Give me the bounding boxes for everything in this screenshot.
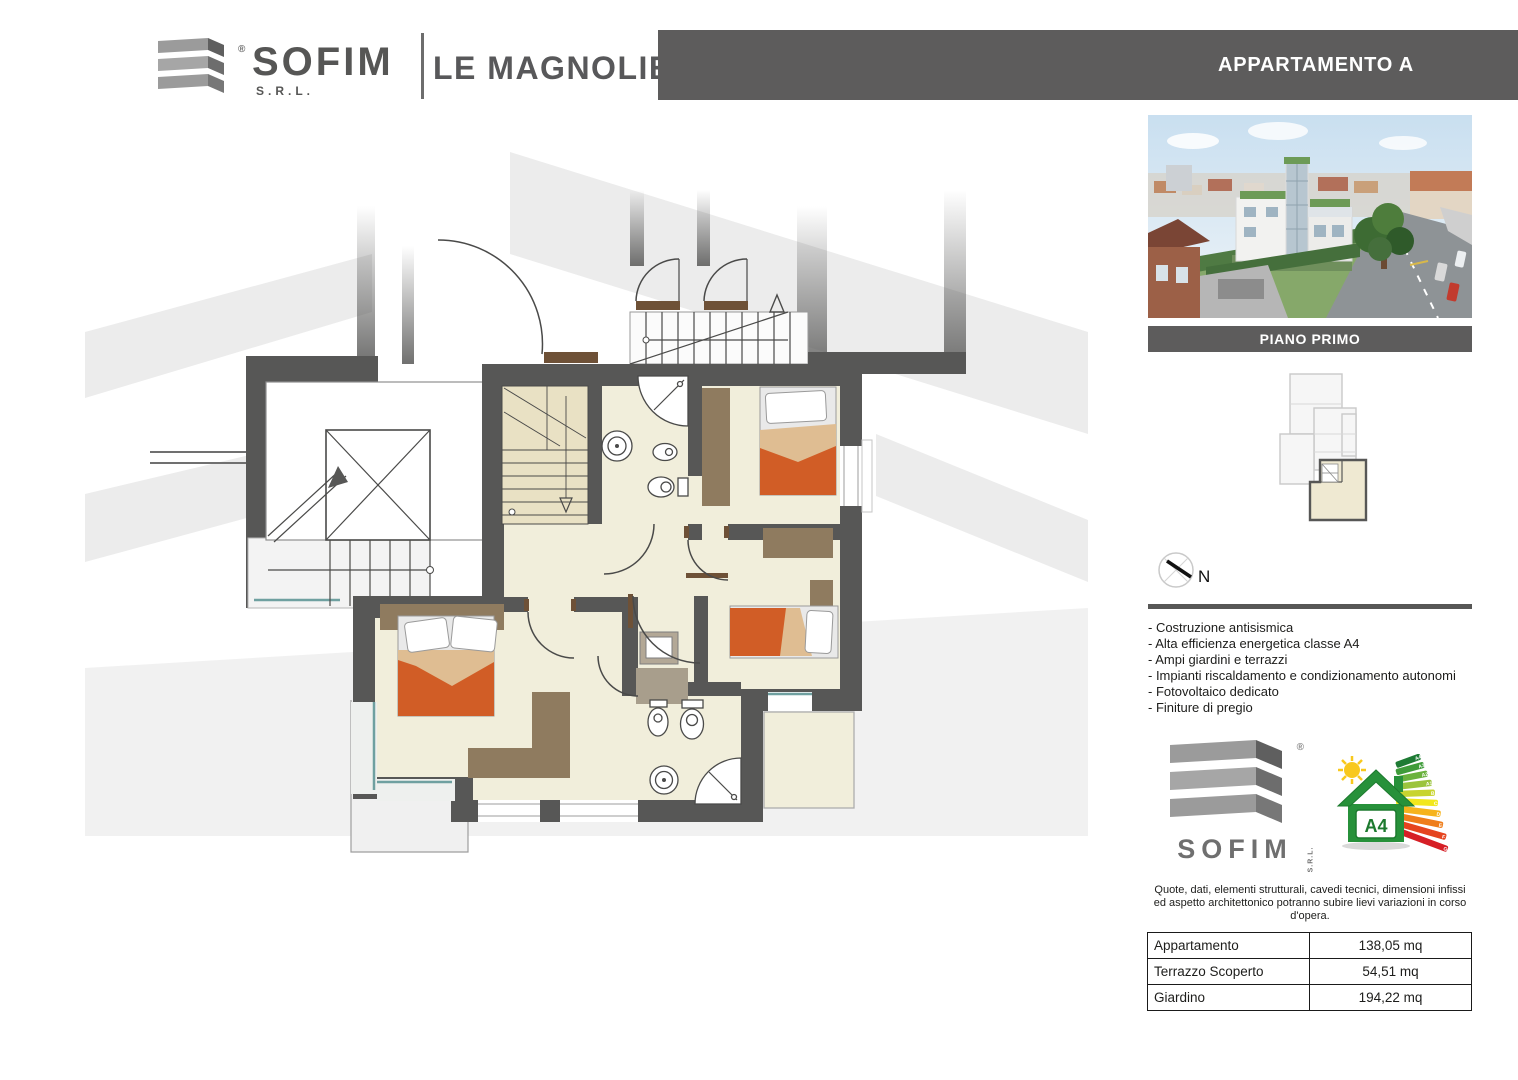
sun-icon — [1338, 756, 1366, 784]
table-row: Giardino 194,22 mq — [1148, 985, 1472, 1011]
disclaimer-line: ed aspetto architettonico potranno subir… — [1148, 897, 1472, 923]
floor-label-bar: PIANO PRIMO — [1148, 326, 1472, 352]
feature-item: - Finiture di pregio — [1148, 700, 1508, 716]
header-divider — [421, 33, 424, 99]
sofim-logo-icon — [1170, 740, 1300, 824]
table-row: Terrazzo Scoperto 54,51 mq — [1148, 959, 1472, 985]
north-compass-icon: N — [1150, 548, 1234, 600]
svg-text:A4: A4 — [1414, 754, 1422, 762]
areas-table: Appartamento 138,05 mq Terrazzo Scoperto… — [1147, 932, 1472, 1011]
apartment-label: APPARTAMENTO A — [1218, 54, 1414, 77]
footer-brand-suffix: S.R.L. — [1308, 847, 1315, 873]
energy-class-label: A4 — [1364, 816, 1387, 836]
building-photo — [1148, 115, 1472, 318]
row-label: Terrazzo Scoperto — [1148, 959, 1310, 985]
feature-item: - Ampi giardini e terrazzi — [1148, 652, 1508, 668]
svg-text:A3: A3 — [1418, 763, 1426, 771]
compass-label: N — [1198, 567, 1210, 586]
energy-house-icon: A4 — [1338, 770, 1414, 850]
svg-text:A2: A2 — [1421, 772, 1429, 779]
row-value: 138,05 mq — [1310, 933, 1472, 959]
bedroom-top-right — [702, 387, 836, 506]
footer-brand-name: SOFIM S.R.L. — [1160, 834, 1310, 865]
disclaimer: Quote, dati, elementi strutturali, caved… — [1148, 884, 1472, 923]
table-row: Appartamento 138,05 mq — [1148, 933, 1472, 959]
feature-item: - Impianti riscaldamento e condizionamen… — [1148, 668, 1508, 684]
floor-locator-thumbnail — [1262, 368, 1412, 536]
feature-item: - Fotovoltaico dedicato — [1148, 684, 1508, 700]
registered-mark: ® — [1297, 742, 1304, 753]
feature-list: - Costruzione antisismica - Alta efficie… — [1148, 620, 1508, 715]
svg-text:A1: A1 — [1426, 781, 1433, 788]
sofim-logo-icon — [158, 38, 236, 96]
row-value: 54,51 mq — [1310, 959, 1472, 985]
project-title: LE MAGNOLIE — [433, 50, 672, 87]
footer-sofim-logo: ® SOFIM S.R.L. — [1160, 740, 1310, 865]
panel-divider — [1148, 604, 1472, 609]
brand-suffix: S.R.L. — [256, 84, 314, 98]
floor-plan — [0, 0, 1090, 1080]
interior-stair — [502, 386, 588, 524]
svg-text:C: C — [1434, 801, 1438, 807]
floor-label: PIANO PRIMO — [1260, 331, 1361, 347]
apartment-title-bar: APPARTAMENTO A — [658, 30, 1518, 100]
registered-mark: ® — [238, 44, 245, 55]
feature-item: - Alta efficienza energetica classe A4 — [1148, 636, 1508, 652]
energy-class-icon: A4 A3 A2 A1 B C D E F G A4 — [1336, 754, 1460, 854]
row-label: Appartamento — [1148, 933, 1310, 959]
row-value: 194,22 mq — [1310, 985, 1472, 1011]
footer-brand-text: SOFIM — [1177, 834, 1293, 864]
terrace-southeast — [764, 712, 854, 808]
brand-name: SOFIM — [252, 40, 394, 85]
svg-text:B: B — [1431, 791, 1435, 797]
feature-item: - Costruzione antisismica — [1148, 620, 1508, 636]
row-label: Giardino — [1148, 985, 1310, 1011]
disclaimer-line: Quote, dati, elementi strutturali, caved… — [1148, 884, 1472, 897]
brochure-page: ® SOFIM S.R.L. LE MAGNOLIE APPARTAMENTO … — [0, 0, 1518, 1080]
